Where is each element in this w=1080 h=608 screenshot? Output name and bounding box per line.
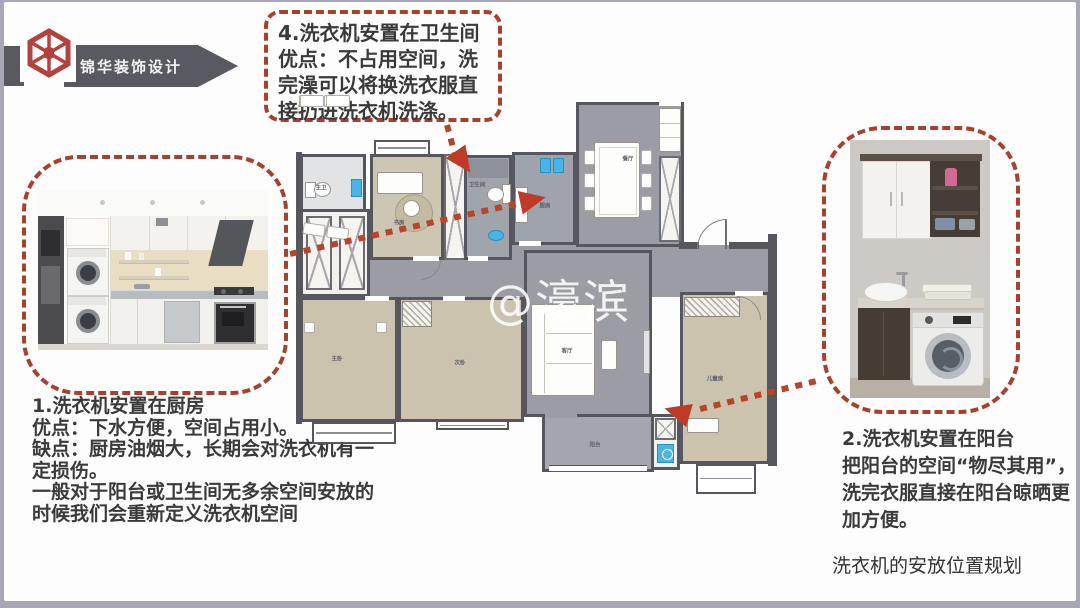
room-label: 阳台 — [590, 440, 601, 448]
washer-display — [953, 316, 971, 324]
room-label: 主卫 — [316, 183, 327, 191]
sofa-line — [546, 363, 592, 364]
washer-controls — [68, 249, 106, 257]
washer-door-ring — [925, 333, 971, 379]
kitchen-floor — [38, 344, 268, 350]
cabinet-seam — [896, 162, 897, 238]
shelf-line — [660, 123, 680, 124]
cabinet-seam — [883, 312, 884, 376]
room-label: 主卧 — [332, 354, 343, 362]
cabinet-handle — [890, 192, 892, 206]
washer-plan-door — [662, 449, 673, 460]
faucet-spout — [896, 272, 908, 275]
note-balcony: 2.洗衣机安置在阳台 把阳台的空间“物尽其用”，洗完衣服直接在阳台晾晒更加方便。 — [842, 426, 1078, 534]
slide-caption: 洗衣机的安放位置规划 — [832, 551, 1022, 578]
chair-icon — [584, 150, 595, 165]
oven-front — [214, 302, 256, 344]
washer-knob — [925, 316, 933, 324]
lower-cabinet-dark — [858, 308, 910, 380]
note-balcony-title: 2.洗衣机安置在阳台 — [842, 426, 1078, 453]
burner — [238, 289, 243, 294]
drum-highlight — [939, 347, 963, 371]
stacked-washer-top — [67, 248, 109, 296]
sink-icon — [488, 230, 504, 241]
ceiling-light — [100, 200, 105, 205]
door-gap — [468, 256, 488, 261]
room-label: 餐厅 — [623, 154, 634, 162]
note-balcony-body: 把阳台的空间“物尽其用”，洗完衣服直接在阳台晾晒更加方便。 — [842, 453, 1078, 534]
towel — [924, 291, 972, 300]
storage-box — [959, 219, 975, 230]
oven-handle — [220, 306, 246, 308]
cabinet-seam — [187, 216, 188, 250]
washer-door-glass — [80, 313, 96, 329]
coffee-table — [601, 340, 617, 370]
ceiling-light — [200, 200, 205, 205]
balcony-opening — [545, 412, 577, 418]
entry-door-arc — [697, 219, 727, 249]
hex-flower-logo-icon — [26, 28, 72, 78]
bay-window — [312, 422, 396, 444]
door-gap — [365, 296, 389, 301]
stovetop — [214, 287, 254, 295]
bay-window — [696, 464, 756, 494]
washer-door-glass — [932, 340, 964, 372]
balcony-photo — [850, 140, 990, 398]
chair-icon — [584, 196, 595, 211]
shelf — [932, 186, 978, 190]
brand-ribbon: 锦华装饰设计 — [64, 45, 238, 87]
door-gap — [519, 241, 541, 246]
oven-panel — [41, 266, 60, 304]
cabinet-seam — [137, 299, 138, 344]
chair-icon — [584, 173, 595, 188]
pillow — [300, 95, 324, 107]
bed-icon — [290, 219, 354, 300]
entry-wall — [679, 242, 699, 249]
brand-name: 锦华装饰设计 — [64, 56, 182, 77]
oven-panel — [41, 230, 60, 256]
hood-chimney — [156, 218, 168, 226]
sofa-line — [546, 333, 592, 334]
tv-icon — [643, 330, 650, 374]
shelf-item — [155, 268, 161, 276]
oven-glass — [222, 312, 244, 326]
cabinet-handle — [901, 192, 903, 206]
nightstand — [304, 322, 315, 333]
wardrobe-icon — [684, 297, 740, 317]
chair-icon — [641, 196, 652, 211]
sink-faucet — [134, 284, 150, 289]
ceiling-light — [150, 200, 155, 205]
kitchen-sink-icon — [553, 158, 564, 173]
open-shelf-dark — [930, 161, 980, 237]
nightstand — [376, 322, 387, 333]
room-label: 儿童房 — [707, 374, 724, 382]
shelf-item — [139, 253, 144, 260]
pillow — [302, 222, 325, 237]
kitchen-washer-icon — [540, 158, 551, 173]
open-shelf — [119, 260, 189, 263]
room-label: 次卧 — [455, 358, 466, 366]
dishwasher-front — [164, 301, 200, 343]
chair-icon — [641, 173, 652, 188]
washer-door — [76, 309, 100, 333]
cabinet-seam — [149, 216, 150, 250]
stacked-washer-bottom — [67, 296, 109, 344]
burner — [221, 289, 226, 294]
window-gap — [659, 100, 681, 106]
shelf-line — [660, 137, 680, 138]
washer-column — [64, 216, 111, 344]
vessel-sink — [864, 282, 908, 302]
callout-bathroom-title: 4.洗衣机安置在卫生间 — [278, 20, 488, 46]
washer-plan-icon — [657, 444, 674, 463]
entry-wall — [729, 242, 773, 249]
entry-hall-floor — [648, 245, 777, 292]
cabinet-door — [66, 218, 109, 246]
shelf-item — [125, 252, 131, 260]
upper-cabinet-white — [862, 161, 932, 239]
toilet-icon — [487, 187, 504, 202]
pillow — [326, 95, 350, 107]
sink-icon — [351, 179, 362, 197]
open-shelf — [119, 276, 189, 279]
door-gap — [443, 296, 465, 301]
washer-door-glass — [80, 265, 96, 281]
presentation-slide: 锦华装饰设计 4.洗衣机安置在卫生间 优点：不占用空间，洗完澡可以将换洗衣服直接… — [4, 2, 1076, 601]
balcony-window — [549, 465, 647, 472]
shelf — [932, 211, 978, 215]
outer-wall — [768, 234, 777, 466]
front-load-washer — [912, 312, 984, 386]
base-cabinets — [111, 299, 268, 344]
window — [436, 420, 509, 430]
watermark: @濠滨 — [487, 266, 631, 332]
wardrobe-icon — [402, 301, 432, 327]
room-label: 客厅 — [562, 346, 573, 354]
chair-icon — [641, 150, 652, 165]
washer-controls — [68, 297, 106, 305]
folded-towels — [935, 218, 955, 230]
detergent-bottle — [945, 168, 957, 186]
hallway-cabinet — [659, 156, 681, 242]
kitchen-photo — [38, 190, 268, 350]
room-label: 卫生间 — [469, 180, 486, 188]
desk-icon — [377, 172, 423, 194]
chair-icon — [403, 200, 420, 217]
washer-control-panel — [913, 313, 983, 328]
washer-door — [76, 261, 100, 285]
desk-icon — [687, 418, 719, 433]
dining-cabinet — [659, 108, 681, 152]
cabinet-top-board — [860, 154, 982, 161]
room-master-bedroom — [300, 297, 398, 422]
built-in-oven-tower — [38, 216, 64, 344]
